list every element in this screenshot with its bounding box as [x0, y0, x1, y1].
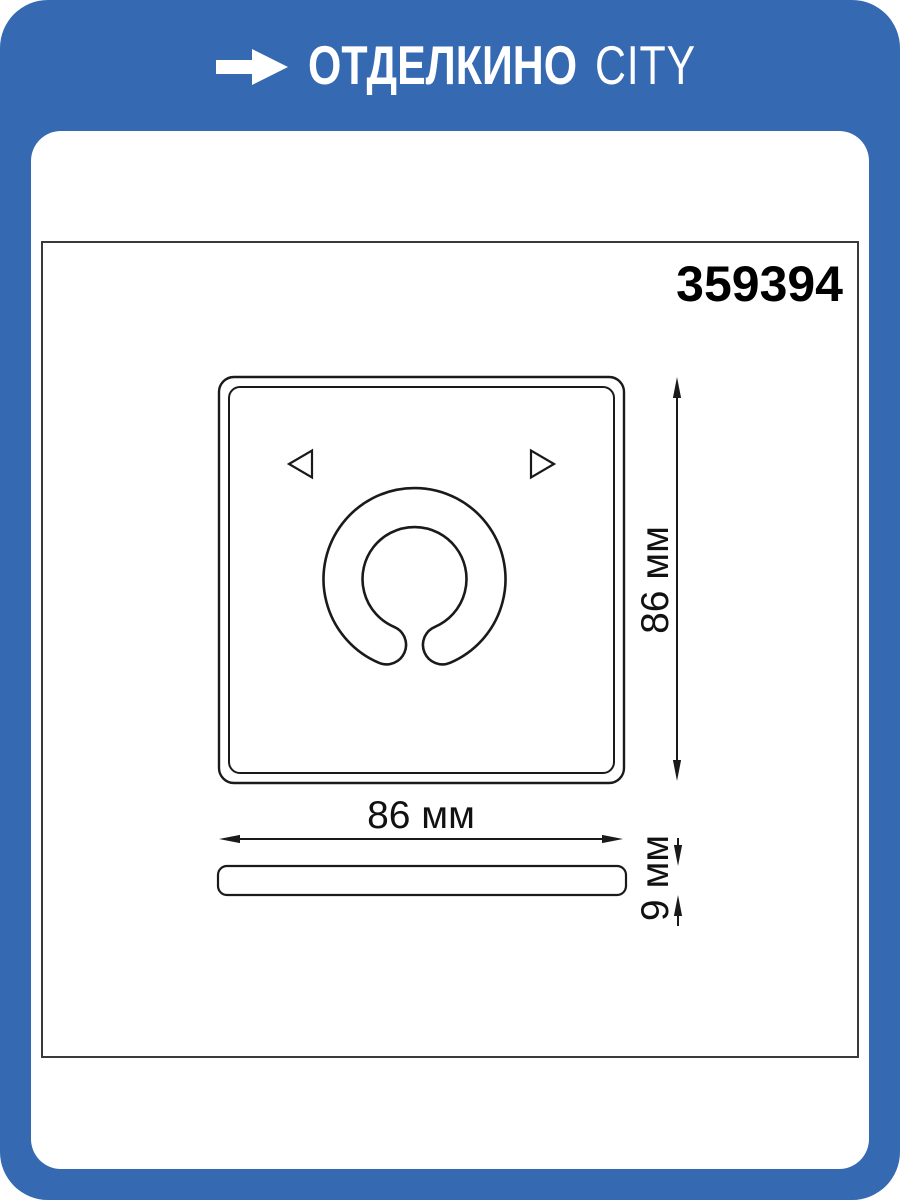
faceplate-front-view [219, 377, 624, 783]
brand-banner: ОТДЕЛКИНО CITY [0, 0, 900, 131]
depth-dimension-label: 9 мм [634, 835, 677, 921]
brand-name-suffix: CITY [595, 38, 696, 93]
article-number: 359394 [676, 256, 843, 312]
faceplate-outline [219, 377, 624, 783]
brand-name: ОТДЕЛКИНО [308, 38, 577, 93]
right-arrow-icon [216, 48, 288, 86]
faceplate-side-view [218, 866, 626, 895]
width-dimension-label: 86 мм [367, 794, 475, 837]
height-dimension-label: 86 мм [634, 526, 677, 634]
depth-dimension: 9 мм [634, 835, 682, 926]
technical-drawing: 359394 86 мм 86 мм [41, 241, 859, 1058]
page: ОТДЕЛКИНО CITY 359394 86 мм 86 м [0, 0, 900, 1200]
